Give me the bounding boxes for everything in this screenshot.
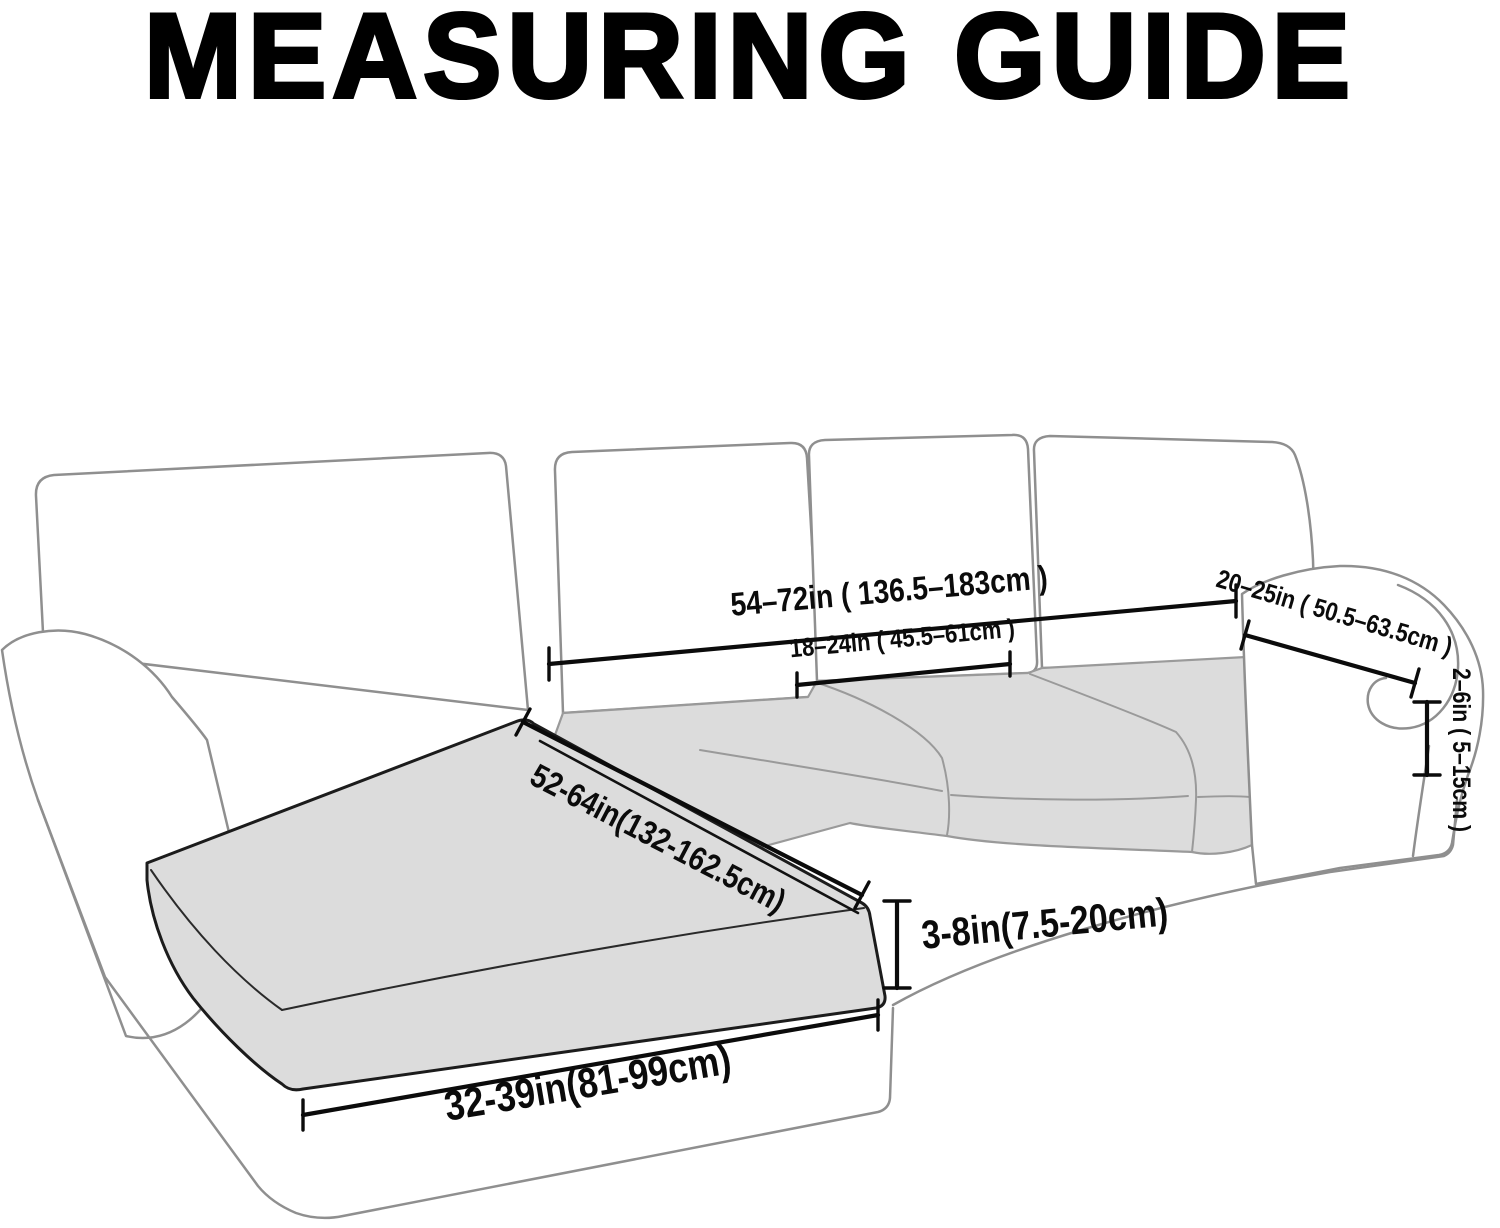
page-title: MEASURING GUIDE [144,0,1356,123]
sofa-drawing [2,435,1483,1218]
dim-cushion-thickness: 3-8in(7.5-20cm) [884,889,1170,988]
sofa-measuring-diagram: MEASURING GUIDE [0,0,1500,1228]
measuring-guide-page: MEASURING GUIDE [0,0,1500,1228]
seat-front-edge-3 [1198,796,1250,797]
dim-cushion-thickness-label: 3-8in(7.5-20cm) [919,889,1170,958]
dim-arm-drop-label: 2–6in ( 5–15cm ) [1448,668,1476,832]
back-cushion-1 [555,443,820,713]
